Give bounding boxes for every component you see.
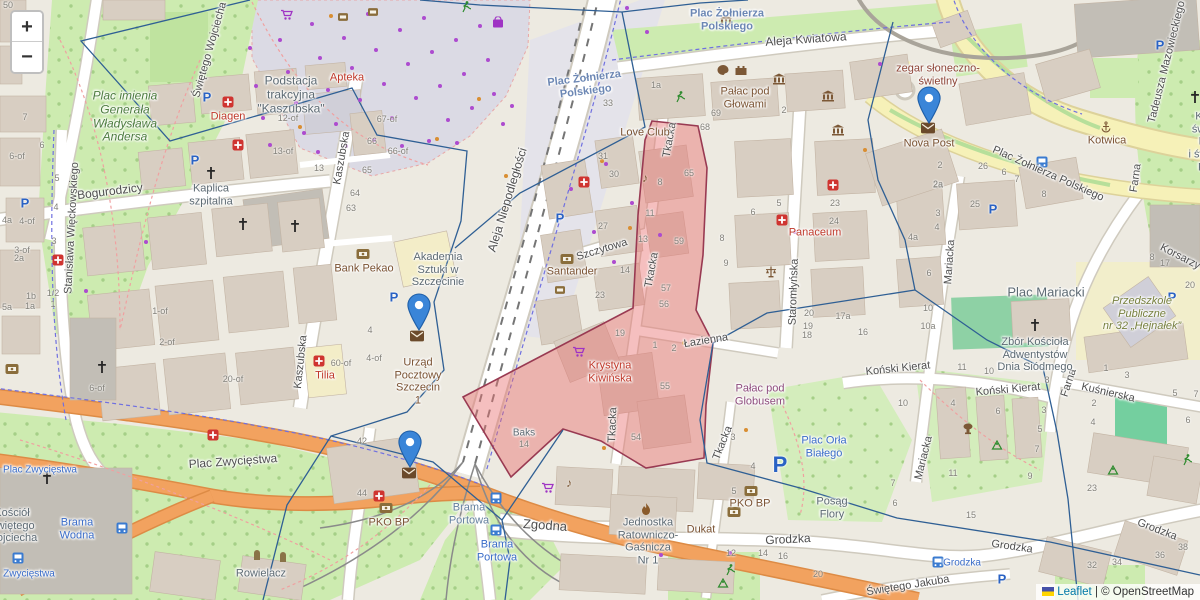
post-office-marker-urzad-pocztowy[interactable] (407, 293, 431, 336)
zoom-out-button[interactable]: − (12, 42, 42, 72)
map-tiles (0, 0, 1200, 600)
post-office-marker-nova-post[interactable] (917, 86, 941, 129)
zoom-in-button[interactable]: + (12, 12, 42, 42)
leaflet-link[interactable]: Leaflet (1057, 586, 1092, 598)
map[interactable]: ♪♪PPPPPPPPPP Aleja KwiatowaAleja Niepodl… (0, 0, 1200, 600)
zoom-control: + − (10, 10, 44, 74)
ukraine-flag-icon (1042, 587, 1054, 596)
attribution-separator: | (1095, 586, 1098, 598)
post-office-marker-pko[interactable] (398, 430, 422, 473)
attribution-bar: Leaflet | © OpenStreetMap (1036, 584, 1200, 600)
osm-attribution: © OpenStreetMap (1101, 586, 1194, 598)
